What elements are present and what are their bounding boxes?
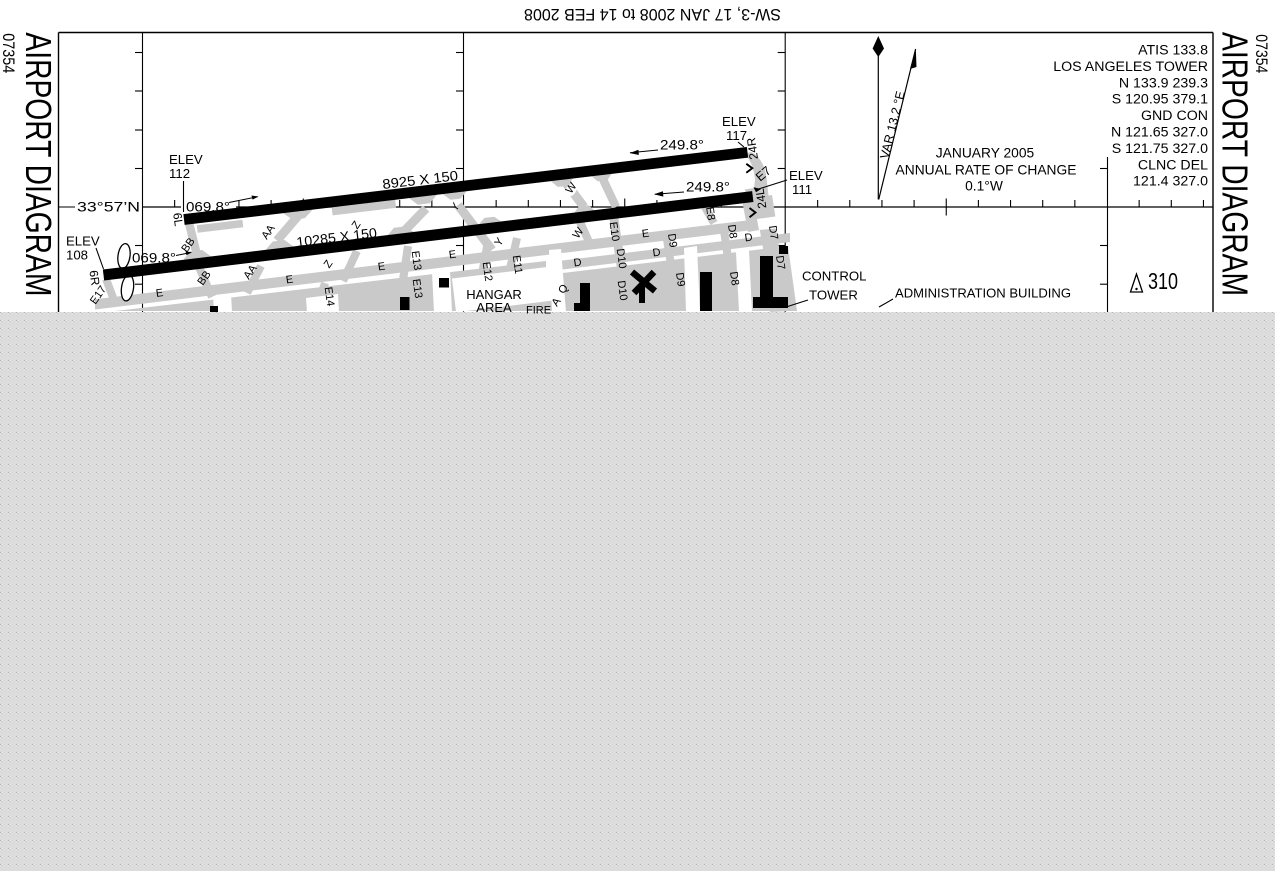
svg-text:D8: D8	[725, 224, 739, 240]
svg-text:111: 111	[792, 182, 812, 197]
svg-text:D: D	[652, 247, 662, 260]
svg-text:CONTROL: CONTROL	[802, 269, 866, 284]
svg-text:ADMINISTRATION BUILDING: ADMINISTRATION BUILDING	[895, 286, 1071, 301]
svg-text:S 121.75 327.0: S 121.75 327.0	[1112, 141, 1208, 157]
svg-text:JANUARY 2005: JANUARY 2005	[936, 146, 1035, 161]
svg-text:ANNUAL RATE OF CHANGE: ANNUAL RATE OF CHANGE	[896, 163, 1077, 178]
svg-text:D7: D7	[766, 225, 780, 241]
svg-text:310: 310	[1148, 268, 1178, 294]
svg-text:6R: 6R	[86, 269, 102, 286]
svg-text:6L: 6L	[170, 212, 186, 227]
svg-text:33°57’N: 33°57’N	[77, 199, 140, 215]
svg-text:112: 112	[169, 166, 190, 181]
svg-text:069.8°: 069.8°	[132, 251, 176, 266]
svg-text:ELEV: ELEV	[789, 168, 823, 183]
svg-text:D9: D9	[673, 272, 687, 288]
svg-text:249.8°: 249.8°	[660, 138, 704, 153]
svg-text:D7: D7	[773, 255, 787, 271]
svg-text:121.4 327.0: 121.4 327.0	[1133, 174, 1208, 190]
svg-text:0.1°W: 0.1°W	[965, 179, 1003, 194]
svg-text:ELEV: ELEV	[722, 114, 756, 129]
svg-text:07354: 07354	[1252, 34, 1271, 73]
svg-text:AREA: AREA	[476, 300, 512, 315]
svg-text:D: D	[573, 257, 583, 270]
svg-text:SW-3, 17 JAN 2008 to 14 FEB 20: SW-3, 17 JAN 2008 to 14 FEB 2008	[524, 5, 781, 23]
svg-text:07354: 07354	[0, 33, 18, 73]
svg-text:GND CON: GND CON	[1141, 108, 1208, 124]
svg-text:S 120.95 379.1: S 120.95 379.1	[1112, 92, 1208, 108]
svg-text:ELEV: ELEV	[66, 234, 100, 249]
svg-text:TOWER: TOWER	[809, 288, 858, 303]
svg-text:LOS ANGELES TOWER: LOS ANGELES TOWER	[1053, 59, 1208, 75]
svg-text:D8: D8	[727, 271, 741, 287]
svg-text:D: D	[744, 232, 754, 245]
svg-text:AIRPORT DIAGRAM: AIRPORT DIAGRAM	[18, 32, 59, 296]
svg-text:24L: 24L	[753, 187, 770, 209]
svg-text:D9: D9	[665, 233, 679, 249]
svg-text:AIRPORT DIAGRAM: AIRPORT DIAGRAM	[1215, 32, 1256, 296]
svg-text:N 121.65 327.0: N 121.65 327.0	[1111, 125, 1208, 141]
svg-text:E8: E8	[703, 206, 717, 221]
svg-text:FIRE: FIRE	[526, 305, 551, 317]
svg-text:069.8°: 069.8°	[186, 200, 230, 215]
svg-text:N 133.9 239.3: N 133.9 239.3	[1119, 75, 1208, 91]
svg-text:ATIS 133.8: ATIS 133.8	[1138, 43, 1208, 59]
svg-text:108: 108	[66, 248, 88, 263]
svg-text:CLNC DEL: CLNC DEL	[1138, 157, 1208, 173]
svg-text:249.8°: 249.8°	[686, 180, 730, 195]
svg-text:ELEV: ELEV	[169, 152, 203, 167]
